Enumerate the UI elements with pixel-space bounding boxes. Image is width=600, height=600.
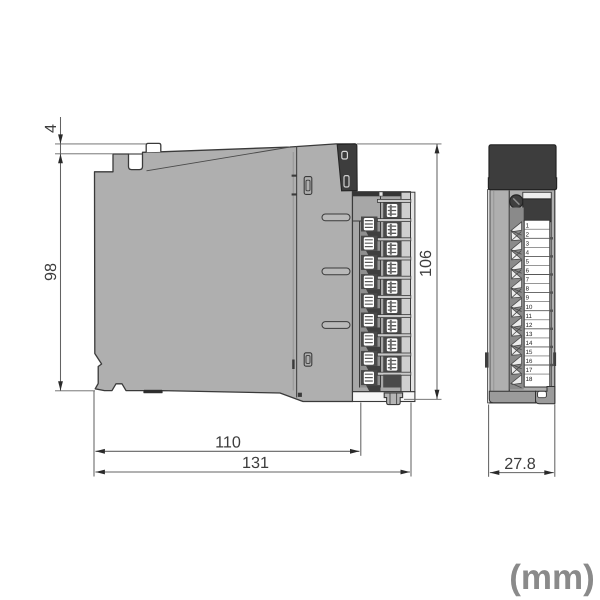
svg-text:4: 4 — [42, 124, 60, 133]
svg-text:17: 17 — [526, 367, 533, 374]
svg-text:12: 12 — [526, 322, 533, 329]
svg-text:110: 110 — [215, 433, 241, 451]
svg-text:18: 18 — [526, 376, 533, 383]
svg-text:13: 13 — [526, 331, 533, 338]
svg-text:10: 10 — [526, 304, 533, 311]
svg-text:15: 15 — [526, 349, 533, 356]
svg-text:14: 14 — [526, 340, 533, 347]
svg-text:11: 11 — [526, 313, 533, 320]
svg-text:(mm): (mm) — [509, 558, 595, 597]
svg-text:27.8: 27.8 — [504, 455, 536, 473]
svg-text:106: 106 — [417, 250, 435, 277]
svg-text:16: 16 — [526, 358, 533, 365]
svg-text:131: 131 — [242, 454, 269, 472]
svg-text:98: 98 — [42, 263, 60, 281]
